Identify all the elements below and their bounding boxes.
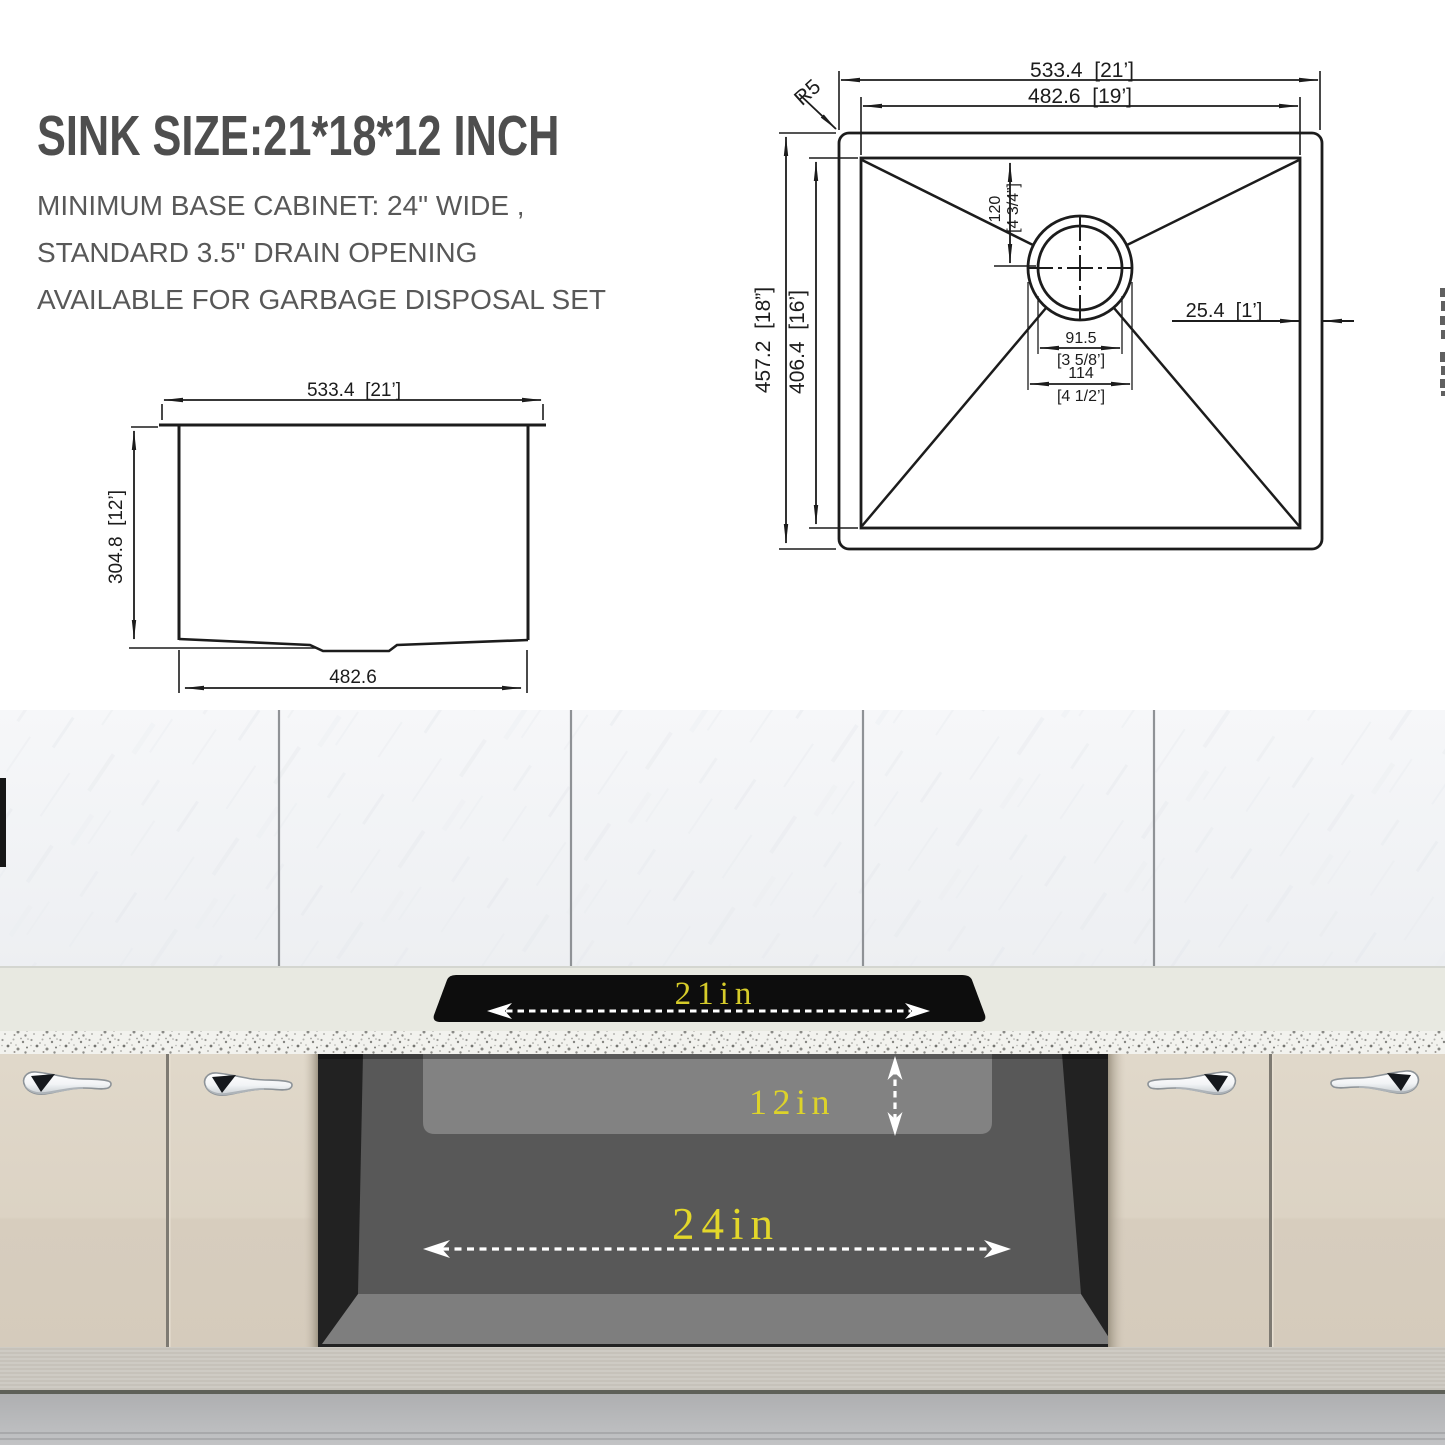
svg-text:533.4 [21’]: 533.4 [21’] xyxy=(1030,59,1134,82)
svg-text:406.4 [16’]: 406.4 [16’] xyxy=(786,290,809,394)
svg-text:533.4 [21’]: 533.4 [21’] xyxy=(307,380,401,401)
svg-text:482.6: 482.6 xyxy=(329,667,377,688)
svg-text:91.5: 91.5 xyxy=(1065,330,1096,347)
svg-text:120: 120 xyxy=(987,196,1004,223)
svg-text:114: 114 xyxy=(1068,365,1094,382)
svg-text:[4 1/2’]: [4 1/2’] xyxy=(1057,388,1105,405)
svg-text:304.8 [12’]: 304.8 [12’] xyxy=(106,490,127,584)
svg-text:21in: 21in xyxy=(675,976,758,1012)
svg-text:R5: R5 xyxy=(790,75,825,110)
svg-text:24in: 24in xyxy=(672,1199,780,1249)
svg-text:25.4 [1’]: 25.4 [1’] xyxy=(1186,300,1263,322)
svg-text:482.6 [19’]: 482.6 [19’] xyxy=(1028,85,1132,108)
svg-text:457.2 [18”]: 457.2 [18”] xyxy=(752,287,775,393)
svg-text:12in: 12in xyxy=(749,1082,835,1122)
svg-text:[4 3/4”]: [4 3/4”] xyxy=(1005,183,1022,233)
